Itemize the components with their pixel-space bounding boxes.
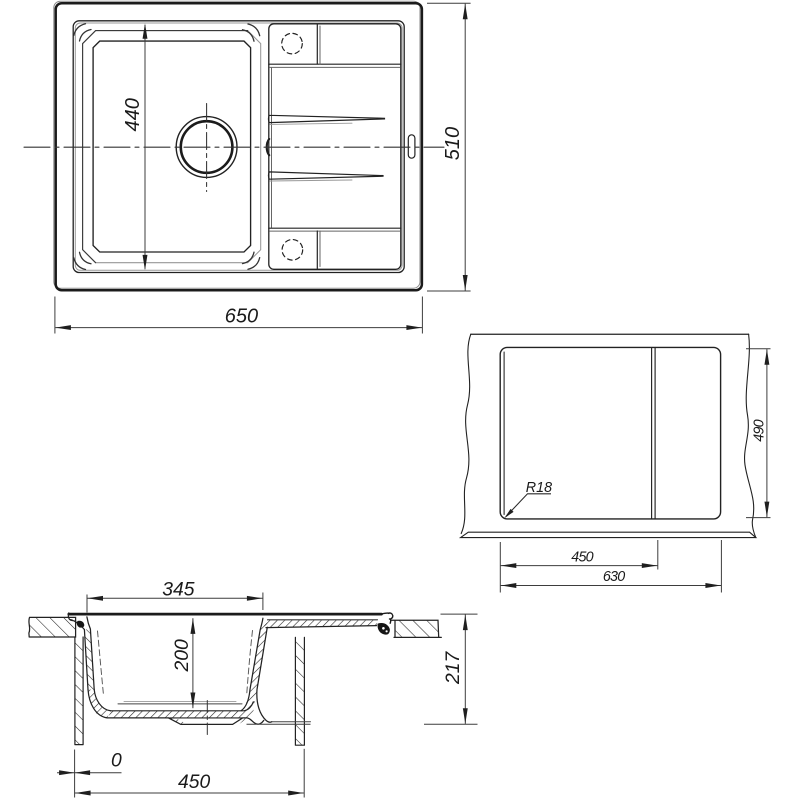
- svg-text:217: 217: [443, 651, 464, 685]
- svg-text:450: 450: [571, 550, 593, 566]
- svg-text:630: 630: [603, 569, 625, 585]
- svg-text:200: 200: [172, 639, 193, 672]
- svg-text:345: 345: [162, 580, 194, 601]
- svg-text:490: 490: [752, 419, 768, 441]
- svg-text:450: 450: [178, 772, 210, 793]
- svg-text:650: 650: [225, 305, 258, 327]
- svg-text:440: 440: [122, 98, 144, 131]
- svg-text:0: 0: [111, 751, 122, 772]
- svg-text:R18: R18: [526, 480, 552, 496]
- svg-text:510: 510: [442, 127, 464, 160]
